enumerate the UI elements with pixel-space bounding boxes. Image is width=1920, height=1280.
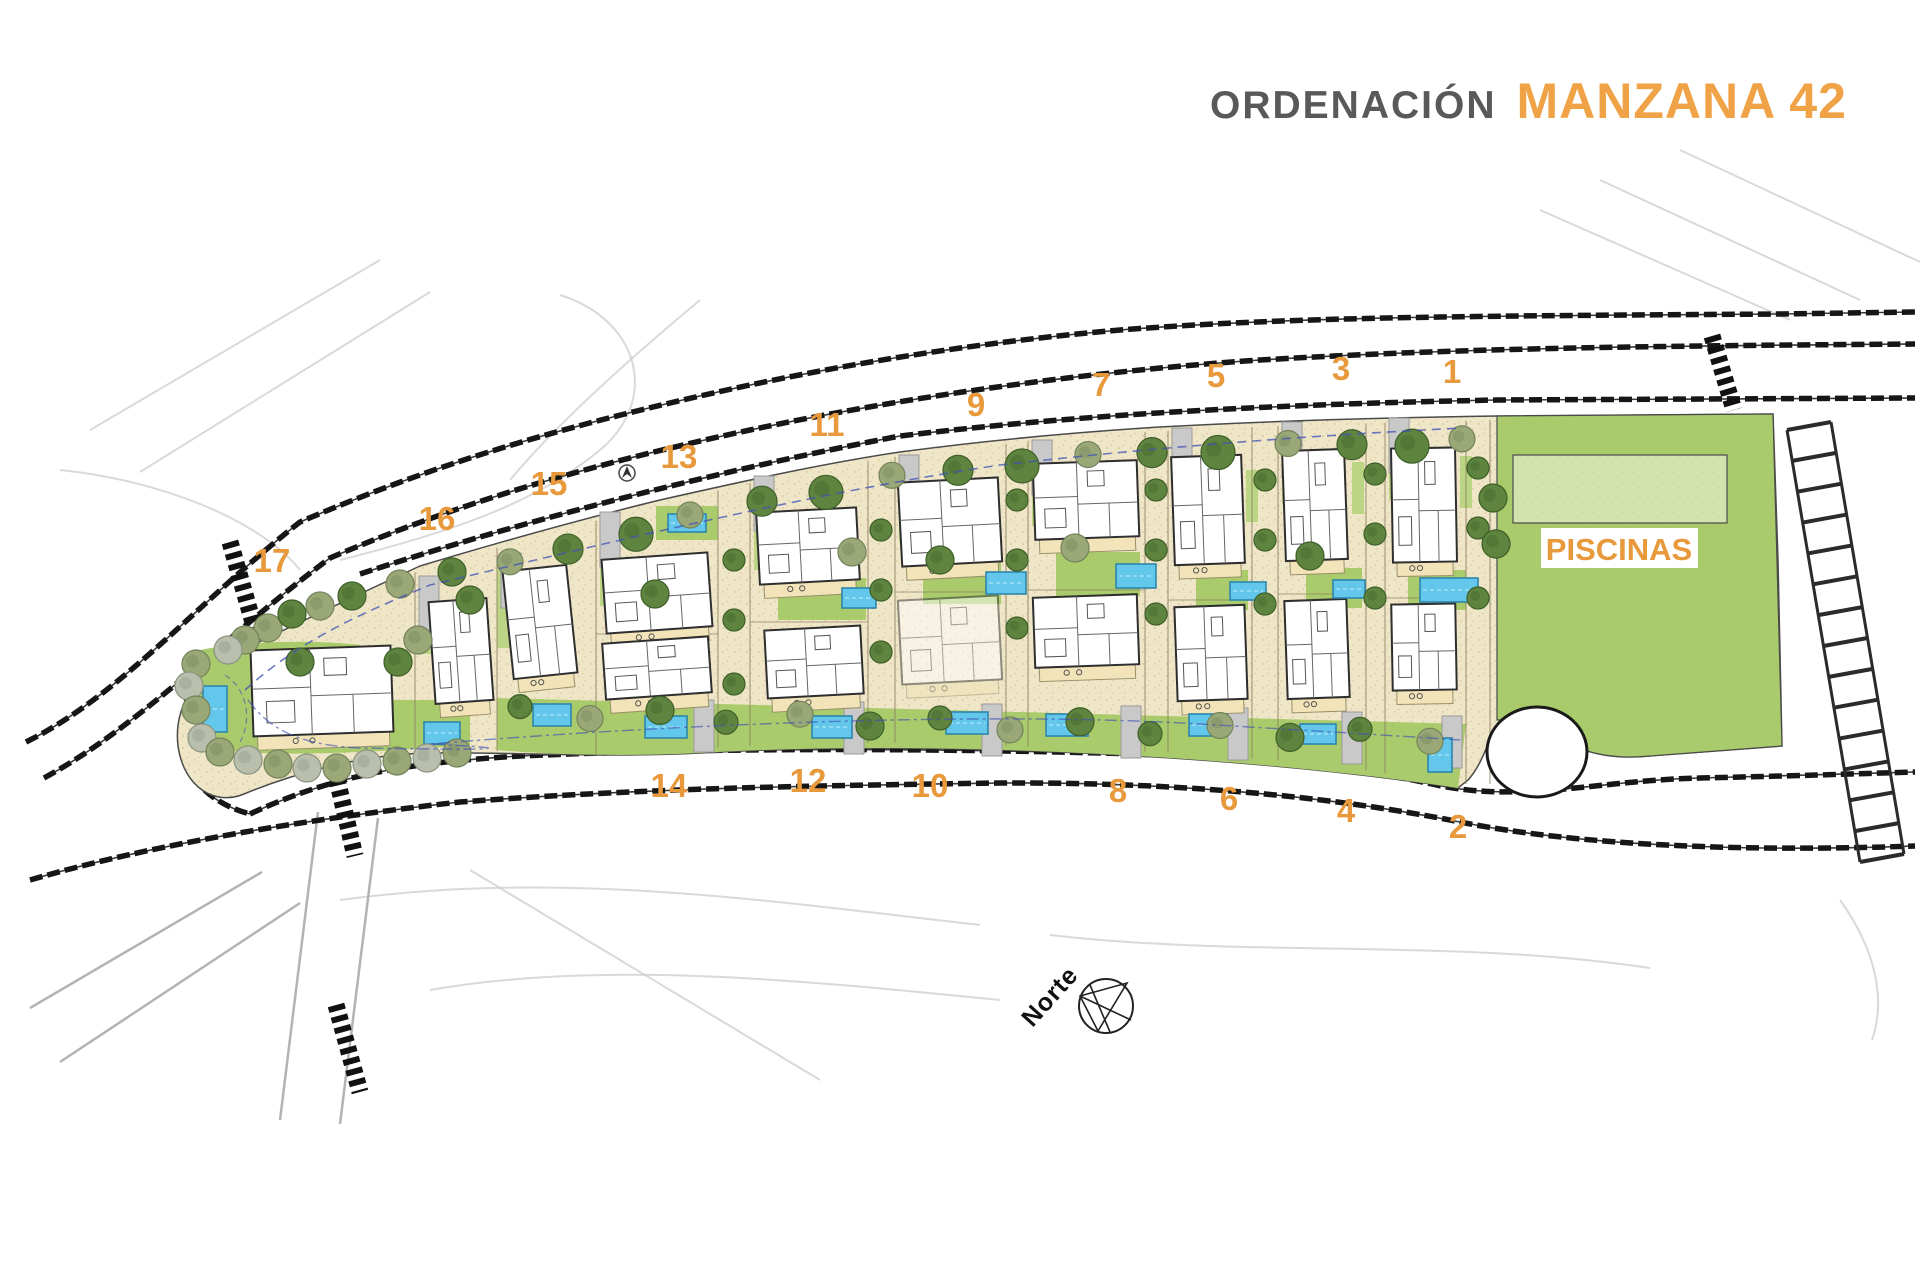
tree-shade [718, 714, 729, 725]
tree-shade [268, 755, 281, 768]
tree-shade [1148, 543, 1158, 553]
minor-road-line [30, 872, 262, 1008]
tree-shade [842, 543, 855, 556]
topo-line [1540, 210, 1790, 320]
tree-icon [1006, 617, 1028, 639]
plot-number-label: 4 [1337, 792, 1356, 829]
tree-icon [413, 744, 441, 772]
tree-shade [1352, 722, 1363, 733]
tree-shade [581, 710, 593, 722]
piscinas-label-group: PISCINAS [1541, 528, 1698, 568]
stairs-step [1834, 700, 1878, 708]
tree-shade [442, 563, 455, 576]
plot-number-label: 12 [790, 762, 827, 799]
tree-shade [501, 553, 513, 565]
villa-inner-wall [1419, 510, 1456, 511]
villa-inner-wall [1419, 651, 1456, 652]
tree-icon [1395, 429, 1429, 463]
topo-line [430, 975, 1000, 1000]
tree-shade [1257, 597, 1267, 607]
topo-line [90, 260, 380, 430]
tree-shade [930, 551, 943, 564]
stairs-step [1813, 576, 1857, 584]
tree-icon [1364, 463, 1386, 485]
site-plan: 1357911131516171412108642 PISCINAS Norte [0, 0, 1920, 1280]
tree-icon [809, 475, 843, 509]
plot-number-label: 1 [1443, 353, 1461, 390]
tree-icon [1137, 438, 1167, 468]
tree-icon [1449, 426, 1475, 452]
tree-icon [926, 546, 954, 574]
minor-road-line [280, 812, 318, 1120]
plot-number-label: 9 [967, 386, 985, 423]
plot-number-label: 10 [912, 767, 949, 804]
tree-shade [558, 539, 572, 553]
plot-number-label: 16 [419, 500, 456, 537]
plot-number-label: 17 [254, 542, 291, 579]
tree-icon [1276, 723, 1304, 751]
tree-shade [645, 585, 658, 598]
tree-shade [726, 613, 736, 623]
tree-shade [1257, 473, 1267, 483]
tree-icon [234, 746, 262, 774]
plot-number-label: 8 [1109, 772, 1127, 809]
tree-shade [210, 743, 223, 756]
plot-number-label: 11 [810, 406, 845, 443]
tree-shade [726, 677, 736, 687]
villa-footprint [251, 646, 394, 751]
tree-shade [1148, 607, 1158, 617]
stairs-step [1808, 545, 1852, 553]
tree-shade [1367, 527, 1377, 537]
villa-inner-wall [1438, 651, 1439, 690]
tree-icon [1005, 449, 1039, 483]
tree-shade [1279, 435, 1291, 447]
tree-shade [186, 655, 199, 668]
tree-icon [182, 696, 210, 724]
tree-shade [873, 583, 883, 593]
minor-road-line [340, 818, 378, 1124]
tree-icon [286, 648, 314, 676]
stairs-step [1803, 515, 1847, 523]
villa-walls [429, 598, 494, 704]
plot-number-label: 5 [1207, 357, 1225, 394]
tree-icon [723, 673, 745, 695]
tree-shade [1211, 717, 1223, 729]
tree-shade [873, 523, 883, 533]
topo-line [1050, 935, 1650, 968]
tree-shade [387, 752, 400, 765]
plot-number-label: 14 [651, 767, 688, 804]
tree-icon [1066, 708, 1094, 736]
tree-icon [1275, 431, 1301, 457]
plot-number-label: 6 [1220, 780, 1238, 817]
tree-icon [997, 717, 1023, 743]
tree-shade [1009, 621, 1019, 631]
villa-footprint [429, 598, 495, 718]
tree-shade [290, 653, 303, 666]
road-hatch-line [250, 750, 1915, 814]
tree-shade [752, 491, 766, 505]
tree-icon [306, 592, 334, 620]
tree-shade [1001, 721, 1013, 733]
tree-shade [390, 575, 403, 588]
tree-shade [342, 587, 355, 600]
tree-icon [714, 710, 738, 734]
tree-shade [1486, 535, 1499, 548]
north-label: Norte [1016, 961, 1084, 1032]
tree-icon [1482, 530, 1510, 558]
tree-icon [1145, 603, 1167, 625]
tree-icon [838, 538, 866, 566]
tree-icon [1201, 436, 1235, 470]
stairs-step [1797, 484, 1841, 492]
stairs-step [1787, 422, 1831, 430]
tree-shade [357, 755, 370, 768]
villa-footprint [1033, 594, 1140, 682]
tree-icon [577, 706, 603, 732]
tree-icon [870, 519, 892, 541]
tree-icon [1006, 549, 1028, 571]
topo-line [1840, 900, 1878, 1040]
tree-shade [512, 699, 523, 710]
topo-line [1600, 180, 1860, 300]
tree-shade [1453, 430, 1465, 442]
plot-number-label: 3 [1332, 350, 1350, 387]
tree-shade [327, 759, 340, 772]
tree-icon [1348, 717, 1372, 741]
plot-number-label: 7 [1092, 366, 1110, 403]
tree-shade [883, 467, 895, 479]
tree-shade [650, 701, 663, 714]
topo-line [340, 887, 980, 925]
tree-icon [1296, 542, 1324, 570]
tree-icon [1364, 523, 1386, 545]
tree-icon [206, 738, 234, 766]
tree-icon [214, 636, 242, 664]
stairs-step [1839, 731, 1883, 739]
tree-icon [928, 706, 952, 730]
stairs-step [1860, 854, 1904, 862]
tree-icon [723, 609, 745, 631]
tree-shade [297, 759, 310, 772]
tree-shade [681, 507, 693, 519]
tree-icon [384, 648, 412, 676]
stairs-step [1829, 669, 1873, 677]
road-hatch-line [30, 783, 1915, 880]
tree-shade [1470, 521, 1480, 531]
road-edge-line [30, 783, 1915, 880]
tree-icon [1254, 469, 1276, 491]
tree-shade [873, 645, 883, 655]
villa-footprint [1174, 605, 1248, 715]
tree-shade [1257, 533, 1267, 543]
tree-icon [1467, 457, 1489, 479]
villa-footprint [1171, 455, 1245, 579]
plot-number-label: 2 [1449, 808, 1467, 845]
tree-shade [408, 631, 421, 644]
tree-shade [1342, 435, 1356, 449]
villa-footprint [1391, 447, 1457, 576]
tree-icon [1364, 587, 1386, 609]
tree-icon [338, 582, 366, 610]
north-compass: Norte [1016, 961, 1133, 1033]
tree-shade [460, 591, 473, 604]
tree-icon [508, 695, 532, 719]
tree-shade [1367, 467, 1377, 477]
tree-icon [278, 600, 306, 628]
stairs-step [1844, 761, 1888, 769]
stairs-step [1855, 823, 1899, 831]
tree-shade [1470, 591, 1480, 601]
minor-road-line [60, 903, 300, 1062]
tree-icon [1061, 534, 1089, 562]
topo-line [140, 292, 430, 472]
tree-shade [1470, 461, 1480, 471]
tree-shade [179, 677, 192, 690]
tree-shade [1148, 483, 1158, 493]
page-title: ORDENACIÓN MANZANA 42 [1210, 72, 1847, 130]
tree-shade [282, 605, 295, 618]
tree-icon [646, 696, 674, 724]
tree-icon [1254, 529, 1276, 551]
tree-shade [1367, 591, 1377, 601]
tree-icon [323, 754, 351, 782]
driveway-bottom [1228, 708, 1248, 760]
piscinas-label: PISCINAS [1546, 532, 1692, 567]
tree-icon [723, 549, 745, 571]
plot-number-label: 15 [531, 465, 568, 502]
tree-shade [726, 553, 736, 563]
topo-line [1680, 150, 1920, 262]
tree-icon [1145, 539, 1167, 561]
tree-icon [1479, 484, 1507, 512]
tree-shade [791, 706, 803, 718]
tree-shade [1400, 435, 1415, 450]
piscinas-lawn [1513, 455, 1727, 523]
villa-footprint [1391, 603, 1457, 704]
tree-shade [192, 729, 205, 742]
tree-icon [1145, 479, 1167, 501]
tree-icon [293, 754, 321, 782]
tree-icon [1075, 442, 1101, 468]
villa-walls [503, 565, 578, 679]
tree-icon [1254, 593, 1276, 615]
tree-shade [1483, 489, 1496, 502]
tree-icon [870, 641, 892, 663]
tree-icon [456, 586, 484, 614]
tree-shade [218, 641, 231, 654]
plot-number-label: 13 [661, 438, 698, 475]
tree-shade [1009, 493, 1019, 503]
site-plan-page: 1357911131516171412108642 PISCINAS Norte… [0, 0, 1920, 1280]
villa-footprint [503, 565, 579, 693]
tree-icon [943, 455, 973, 485]
tree-shade [388, 653, 401, 666]
tree-shade [1300, 547, 1313, 560]
villa-footprint [764, 626, 864, 713]
tree-icon [856, 712, 884, 740]
tree-icon [386, 570, 414, 598]
tree-shade [310, 597, 323, 610]
tree-icon [641, 580, 669, 608]
crosswalk-hatch [336, 1005, 360, 1092]
tree-icon [1006, 489, 1028, 511]
stairs-step [1824, 638, 1868, 646]
tree-shade [814, 481, 829, 496]
tree-shade [860, 717, 873, 730]
stairs-step [1818, 607, 1862, 615]
tree-shade [1009, 553, 1019, 563]
tree-shade [1280, 728, 1293, 741]
tree-icon [497, 549, 523, 575]
stairs-ramp [1787, 422, 1904, 862]
tree-shade [258, 619, 271, 632]
garden-strip [1352, 462, 1364, 514]
title-block-name: MANZANA 42 [1517, 72, 1847, 130]
tree-icon [1467, 587, 1489, 609]
stairs-step [1792, 453, 1836, 461]
tree-icon [383, 747, 411, 775]
tree-shade [417, 749, 430, 762]
tree-shade [186, 701, 199, 714]
title-prefix: ORDENACIÓN [1210, 84, 1497, 128]
cul-de-sac-knob [1487, 707, 1587, 797]
stairs-step [1850, 792, 1894, 800]
tree-icon [264, 750, 292, 778]
tree-icon [404, 626, 432, 654]
tree-icon [353, 750, 381, 778]
tree-icon [1417, 728, 1443, 754]
tree-shade [1065, 539, 1078, 552]
tree-shade [1142, 726, 1153, 737]
villa-footprint [898, 595, 1003, 698]
villa-footprint [1284, 599, 1350, 713]
tree-shade [238, 751, 251, 764]
tree-icon [870, 579, 892, 601]
tree-icon [1138, 722, 1162, 746]
